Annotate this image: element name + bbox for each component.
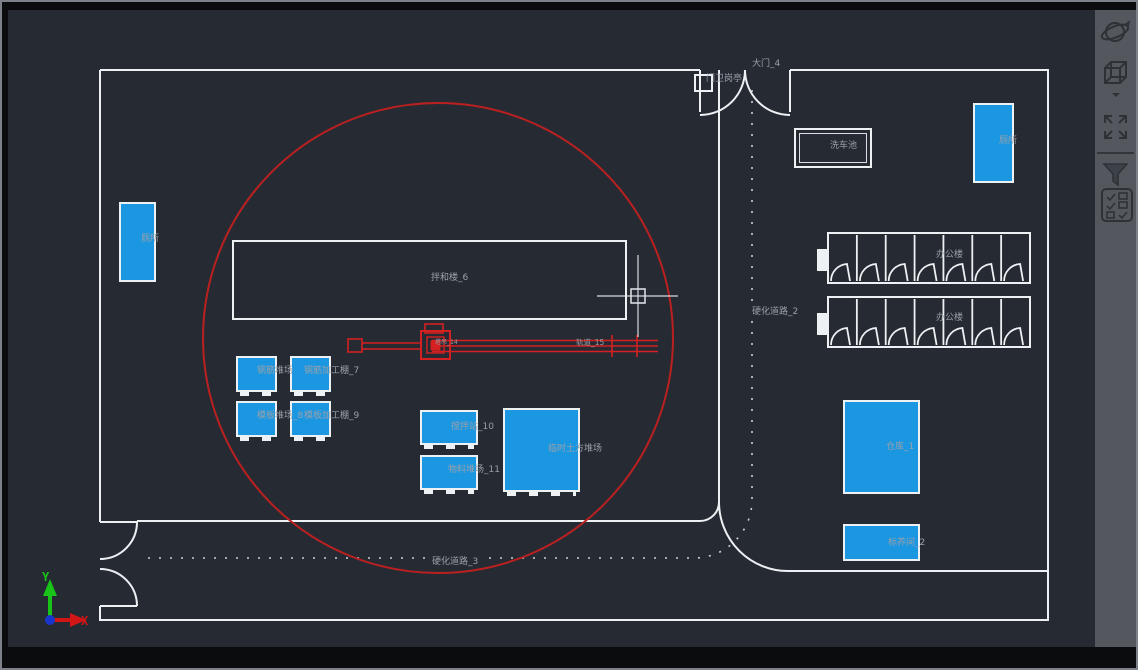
label-main-gate: 大门_4	[752, 59, 780, 69]
label-guard-booth: 门卫岗亭	[706, 74, 742, 84]
mixing-hall-entity[interactable]	[232, 240, 627, 320]
label-rebar-shed: 钢筋加工棚_7	[304, 366, 359, 376]
label-tower-crane: 塔吊_14	[435, 340, 458, 347]
viewcube-icon[interactable]	[1099, 55, 1132, 91]
label-toilet-right: 厕所	[999, 136, 1017, 146]
label-rebar-yard: 钢筋堆场	[257, 366, 293, 376]
label-office-2: 办公楼	[936, 313, 963, 323]
expand-arrows-icon[interactable]	[1099, 110, 1132, 146]
label-curing-room: 标养间_2	[888, 538, 925, 548]
label-warehouse: 仓库_1	[886, 442, 914, 452]
label-crane-track: 轨道_15	[576, 339, 604, 348]
checklist-icon[interactable]	[1099, 186, 1132, 222]
label-mixing-hall: 拌和楼_6	[431, 273, 468, 283]
navigation-toolbar	[1095, 10, 1136, 647]
orbit-icon[interactable]	[1099, 14, 1132, 50]
label-toilet-left: 厕所	[141, 234, 159, 244]
label-mixer-station: 搅拌站_10	[451, 422, 494, 432]
label-material-yard: 物料堆场_11	[448, 465, 500, 475]
toolbar-divider	[1097, 152, 1134, 154]
label-formwork-shed: 模板加工棚_9	[304, 411, 359, 421]
app-window: Y X 大门_4 门卫岗亭 洗车池 厕所 厕所 拌和楼_6 硬化道路_2 塔吊_…	[0, 0, 1138, 670]
label-formwork-yard: 模板堆场_8	[257, 411, 303, 421]
drawing-canvas[interactable]	[8, 10, 1095, 647]
label-road-vertical: 硬化道路_2	[749, 307, 801, 317]
label-road-horizontal: 硬化道路_3	[429, 557, 481, 567]
label-office-1: 办公楼	[936, 250, 963, 260]
label-temp-soil-yard: 临时土方堆场	[548, 444, 602, 454]
label-wash-pool: 洗车池	[830, 141, 857, 151]
